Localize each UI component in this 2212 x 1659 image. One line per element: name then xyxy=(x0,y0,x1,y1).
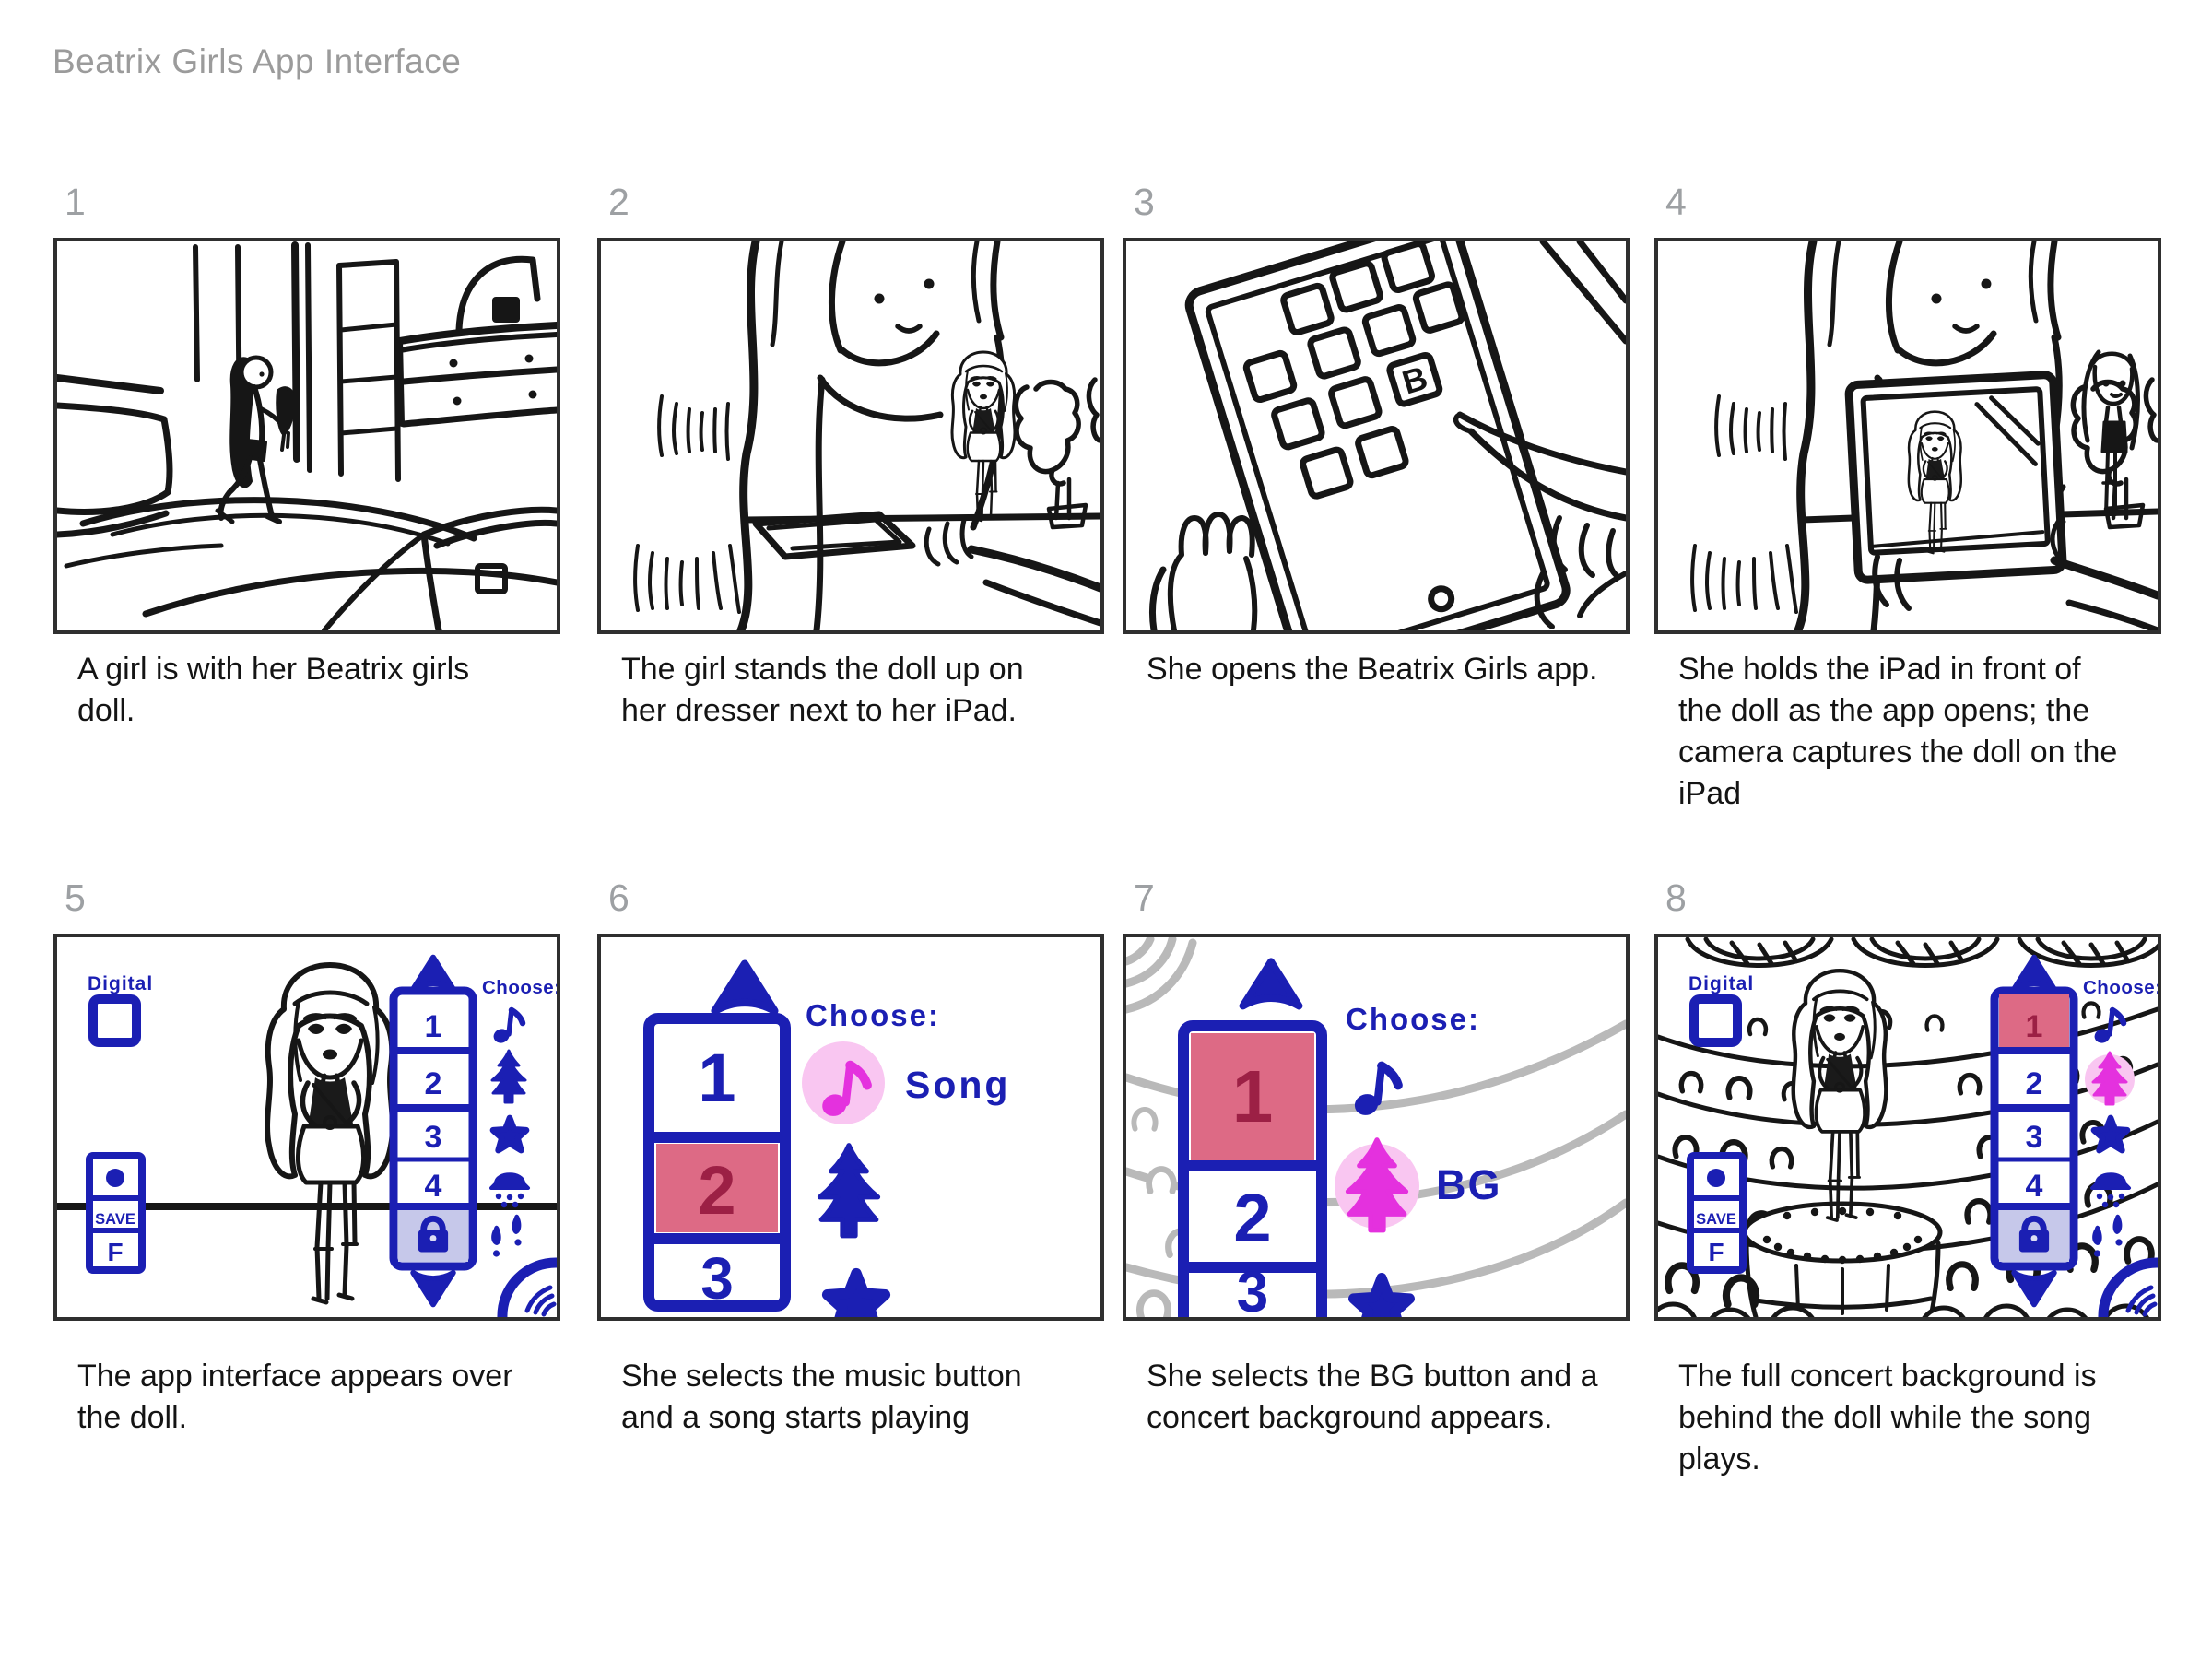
slot-3: 3 xyxy=(2026,1120,2043,1155)
choose-label: Choose: xyxy=(482,977,557,998)
panel-frame xyxy=(1654,238,2161,634)
ipad-sketch: B xyxy=(1185,241,1570,630)
slot-2-selected: 2 xyxy=(698,1152,735,1229)
footsteps-icon xyxy=(2092,1215,2122,1257)
f-button: F xyxy=(107,1238,123,1266)
save-button-panel: SAVE F xyxy=(1690,1156,1743,1270)
panel-caption: The app interface appears over the doll. xyxy=(53,1356,531,1439)
panel-caption: The full concert background is behind th… xyxy=(1654,1356,2132,1480)
panel-number: 5 xyxy=(53,877,570,934)
choose-label: Choose: xyxy=(2083,977,2158,998)
page-title: Beatrix Girls App Interface xyxy=(53,42,461,81)
down-arrow-icon xyxy=(2014,1273,2054,1305)
song-selection-sketch: 1 2 3 Choose: Song xyxy=(601,937,1100,1317)
front-crowd-sketch xyxy=(1658,1304,2150,1317)
slot-2: 2 xyxy=(425,1066,442,1101)
panel-number: 2 xyxy=(597,181,1113,238)
panel-caption: She selects the BG button and a concert … xyxy=(1123,1356,1600,1439)
app-interface-over-doll-sketch: Digital SAVE F xyxy=(57,937,557,1317)
slot-list: 1 2 3 xyxy=(1183,1026,1322,1317)
slot-3: 3 xyxy=(425,1120,442,1155)
panel-frame xyxy=(597,238,1104,634)
storyboard-panel-7: 7 1 2 xyxy=(1123,877,1639,1439)
storyboard-panel-1: 1 xyxy=(53,181,570,732)
panel-caption: She opens the Beatrix Girls app. xyxy=(1123,649,1600,690)
stage-sketch xyxy=(1745,1204,1940,1317)
bg-label: BG xyxy=(1436,1161,1502,1208)
slot-list: 1 2 3 4 xyxy=(394,991,473,1266)
slot-1: 1 xyxy=(698,1040,735,1116)
storyboard-panel-3: 3 B xyxy=(1123,181,1639,690)
save-button: SAVE xyxy=(95,1211,135,1228)
save-button-panel: SAVE F xyxy=(89,1156,142,1270)
panel-caption: The girl stands the doll up on her dress… xyxy=(597,649,1075,732)
storyboard-panel-5: 5 Digital SAVE F xyxy=(53,877,570,1439)
footsteps-icon xyxy=(491,1215,521,1257)
digital-checkbox xyxy=(93,999,136,1042)
slot-1-selected: 1 xyxy=(1232,1055,1274,1137)
panel-number: 4 xyxy=(1654,181,2171,238)
digital-checkbox xyxy=(1694,999,1737,1042)
up-arrow-icon xyxy=(413,958,453,990)
hand-holding-doll-sketch xyxy=(926,520,1100,623)
storyboard-panel-4: 4 xyxy=(1654,181,2171,815)
slot-1-selected: 1 xyxy=(2026,1009,2043,1044)
slot-1: 1 xyxy=(425,1009,442,1044)
up-arrow-icon xyxy=(1243,961,1300,1006)
slot-3: 3 xyxy=(1237,1261,1268,1317)
pointing-hand-sketch xyxy=(1456,415,1626,627)
bg-selection-sketch: 1 2 3 Choose: BG xyxy=(1126,937,1626,1317)
panel-frame: 1 2 3 Choose: Song xyxy=(597,934,1104,1321)
panel-frame: Digital SAVE F xyxy=(1654,934,2161,1321)
selection-glow xyxy=(802,1041,885,1124)
slot-list: 1 2 3 xyxy=(649,1018,785,1312)
music-note-icon xyxy=(492,1010,523,1045)
slot-4: 4 xyxy=(425,1169,442,1204)
record-dot-icon xyxy=(1707,1169,1725,1187)
digital-label: Digital xyxy=(1688,973,1754,994)
panel-caption: A girl is with her Beatrix girls doll. xyxy=(53,649,531,732)
home-button xyxy=(1429,586,1453,611)
music-note-icon xyxy=(1352,1066,1398,1119)
star-icon xyxy=(493,1118,526,1150)
tree-icon xyxy=(820,1146,878,1236)
shower-icon xyxy=(491,1174,528,1207)
star-icon xyxy=(828,1274,886,1317)
left-hand-sketch xyxy=(1152,514,1254,630)
storyboard-panel-8: 8 xyxy=(1654,877,2171,1480)
up-arrow-icon xyxy=(2014,958,2054,990)
ipad-camera-sketch xyxy=(1658,241,2158,630)
doll-on-dresser-sketch xyxy=(601,241,1100,630)
song-label: Song xyxy=(905,1064,1010,1106)
panel-number: 6 xyxy=(597,877,1113,934)
choose-label: Choose: xyxy=(806,998,940,1032)
panel-number: 8 xyxy=(1654,877,2171,934)
panel-frame xyxy=(53,238,560,634)
doll-behind-ipad-sketch xyxy=(2084,352,2138,514)
storyboard-page: Beatrix Girls App Interface 1 xyxy=(0,0,2212,1659)
tree-icon xyxy=(492,1051,525,1102)
panel-caption: She holds the iPad in front of the doll … xyxy=(1654,649,2132,815)
panel-number: 1 xyxy=(53,181,570,238)
slot-list: 1 2 3 4 xyxy=(1994,991,2074,1266)
down-arrow-icon xyxy=(413,1273,453,1305)
panel-number: 3 xyxy=(1123,181,1639,238)
ipad-flat-sketch xyxy=(756,514,912,557)
concert-scene-sketch: Digital SAVE F xyxy=(1658,937,2158,1317)
slot-2: 2 xyxy=(2026,1066,2043,1101)
panel-frame: 1 2 3 Choose: BG xyxy=(1123,934,1630,1321)
storyboard-panel-2: 2 The girl stands the doll up on xyxy=(597,181,1113,732)
save-button: SAVE xyxy=(1696,1211,1736,1228)
storyboard-panel-6: 6 1 2 3 Choose: Song xyxy=(597,877,1113,1439)
panel-frame: Digital SAVE F xyxy=(53,934,560,1321)
f-button: F xyxy=(1708,1238,1724,1266)
sound-signal-icon xyxy=(502,1263,557,1317)
panel-number: 7 xyxy=(1123,877,1639,934)
panel-caption: She selects the music button and a song … xyxy=(597,1356,1075,1439)
digital-label: Digital xyxy=(88,973,153,994)
slot-3: 3 xyxy=(700,1245,734,1312)
choose-label: Choose: xyxy=(1346,1002,1480,1036)
star-icon xyxy=(1354,1278,1410,1317)
panel-frame: B xyxy=(1123,238,1630,634)
ipad-tap-sketch: B xyxy=(1126,241,1626,630)
app-icon-grid xyxy=(1226,241,1500,505)
up-arrow-icon xyxy=(715,964,775,1011)
app-icon-letter: B xyxy=(1398,359,1432,402)
bedroom-scene-sketch xyxy=(57,241,557,630)
slot-4: 4 xyxy=(2026,1169,2043,1204)
slot-2: 2 xyxy=(1233,1180,1271,1256)
record-dot-icon xyxy=(106,1169,124,1187)
